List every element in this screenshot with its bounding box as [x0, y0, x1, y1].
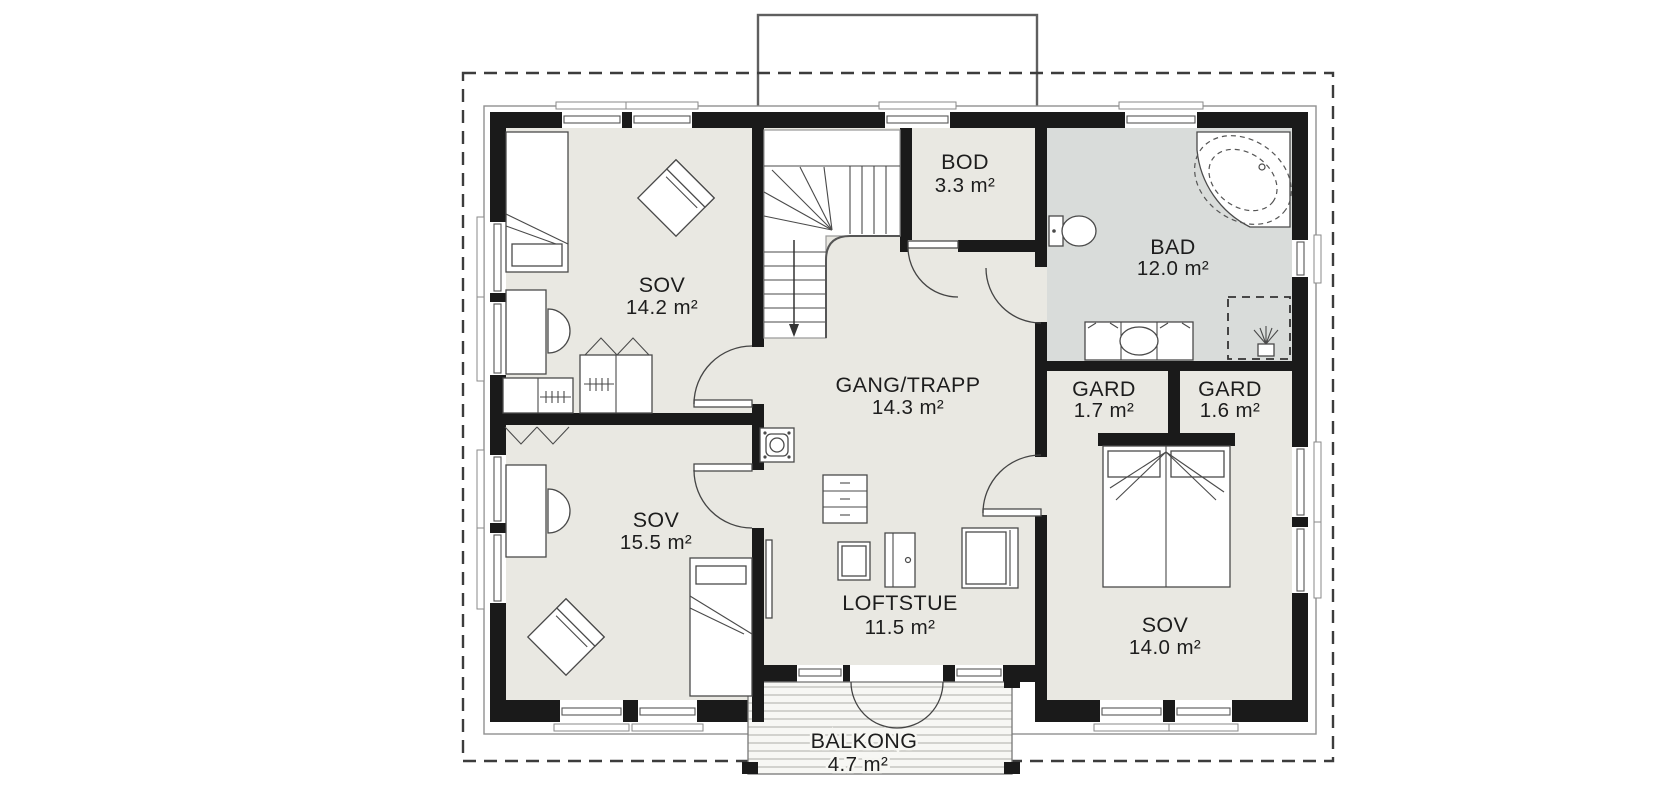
- armchair-icon: [962, 528, 1018, 588]
- room-label-bad: BAD: [1150, 235, 1195, 259]
- room-label-sov-sw: SOV: [633, 508, 680, 532]
- wall-connector-left: [752, 665, 764, 722]
- bed-icon: [506, 132, 568, 272]
- media-cabinet-icon: [885, 533, 915, 587]
- room-label-sov-east: SOV: [1142, 613, 1189, 637]
- room-label-gang: GANG/TRAPP: [836, 373, 981, 397]
- room-area-bad: 12.0 m²: [1137, 257, 1209, 280]
- room-area-sov-east: 14.0 m²: [1129, 636, 1201, 659]
- room-area-bod: 3.3 m²: [935, 174, 996, 197]
- bed-icon: [690, 558, 752, 696]
- chimney-icon: [760, 428, 794, 462]
- wall-connector-right: [1035, 665, 1047, 722]
- sink-vanity-icon: [1085, 322, 1193, 360]
- wall-panel-icon: [766, 540, 772, 618]
- room-label-sov-nw: SOV: [639, 273, 686, 297]
- room-area-balkong: 4.7 m²: [828, 753, 889, 776]
- room-area-gard-west: 1.7 m²: [1074, 399, 1135, 422]
- room-area-sov-nw: 14.2 m²: [626, 296, 698, 319]
- room-label-gard-east: GARD: [1198, 377, 1262, 401]
- dormer-outline: [758, 15, 1037, 111]
- toilet-icon: [1049, 216, 1096, 246]
- room-label-bod: BOD: [941, 150, 989, 174]
- room-area-gang: 14.3 m²: [872, 396, 944, 419]
- room-area-gard-east: 1.6 m²: [1200, 399, 1261, 422]
- side-table-icon: [838, 542, 870, 580]
- dresser-icon: [823, 475, 867, 523]
- room-area-loftstue: 11.5 m²: [865, 616, 936, 639]
- room-label-loftstue: LOFTSTUE: [842, 591, 958, 615]
- balcony-door-opening: [850, 665, 943, 682]
- room-label-gard-west: GARD: [1072, 377, 1136, 401]
- floor-plan-drawing: SOV 14.2 m² SOV 15.5 m² GANG/TRAPP 14.3 …: [0, 0, 1670, 800]
- room-label-balkong: BALKONG: [811, 729, 918, 753]
- floor-plan-page: SOV 14.2 m² SOV 15.5 m² GANG/TRAPP 14.3 …: [0, 0, 1670, 800]
- room-area-sov-sw: 15.5 m²: [620, 531, 692, 554]
- double-bed-icon: [1103, 446, 1230, 587]
